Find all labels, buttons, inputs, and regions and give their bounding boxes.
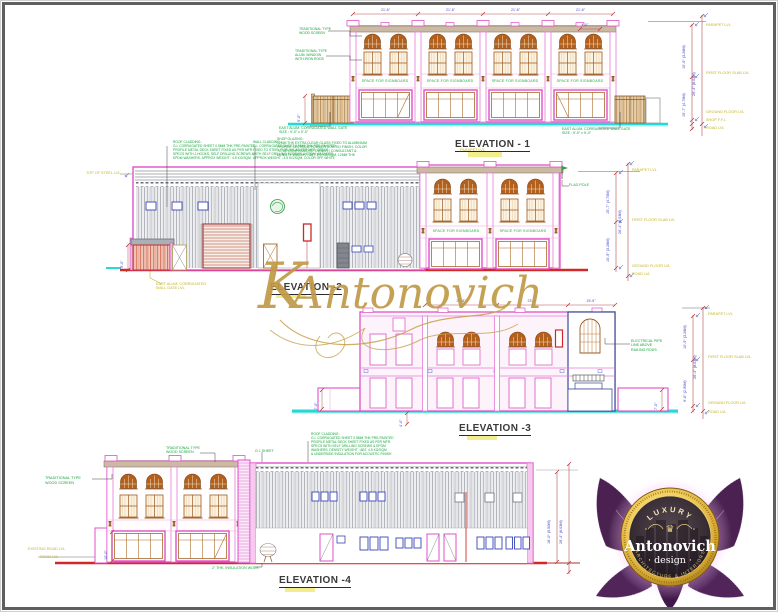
- green-note: EAST ALUM. CORRUGATED WALL GATE SIZE : 9…: [562, 127, 652, 136]
- dimension-text: 9'-0": [120, 260, 124, 268]
- elevation-4-drawing: [38, 441, 580, 574]
- dimension-text: 21'-6": [371, 8, 401, 12]
- green-note: 2" THK. INSULATION WORK: [212, 566, 304, 570]
- dimension-text: 10'-9" (3.28M): [682, 45, 686, 69]
- signboard-text: SPACE FOR SIGNBOARD: [552, 79, 608, 83]
- green-note: TRADITIONAL TYPE WOOD SCREEN: [299, 27, 331, 35]
- logo-design-text: · design ·: [648, 555, 692, 566]
- dimension-text: 10'-9" (3.28M): [606, 238, 610, 262]
- elevation-4-title: ELEVATION -4: [279, 575, 351, 588]
- signboard-text: SPACE FOR SIGNBOARD: [428, 229, 484, 233]
- signboard-text: SPACE FOR SIGNBOARD: [495, 229, 551, 233]
- level-label: EXISTING ROAD LVL: [28, 547, 65, 551]
- green-note: TRADITIONAL TYPE WOOD SCREEN: [166, 446, 200, 455]
- level-label: ROAD LVL: [708, 410, 727, 414]
- signboard-text: SPACE FOR SIGNBOARD: [487, 79, 543, 83]
- dimension-text: 9'-6" (2.90M): [683, 380, 687, 402]
- green-note: ELECTRICAL PIPE LINE ABOVE RAILING RODS: [631, 339, 662, 352]
- green-note: TRADITIONAL TYPE WOOD SCREEN: [45, 476, 81, 485]
- dimension-text: 26'-4" (8.03M): [692, 72, 696, 96]
- svg-text:♛: ♛: [666, 524, 675, 535]
- dimension-text: 10'-0": [104, 550, 108, 560]
- dimension-text: 15'-5": [576, 299, 606, 303]
- dimension-text: 10'-9" (3.28M): [683, 325, 687, 349]
- level-label: ROAD LVL: [632, 272, 651, 276]
- level-label: PARAPET LVL: [706, 23, 731, 27]
- level-label: PARAPET LVL: [632, 168, 657, 172]
- level-label: TOP OF STEEL LVL: [86, 171, 120, 175]
- green-note: FLAG POLE: [569, 183, 589, 187]
- dimension-text: 4'-0": [575, 23, 595, 27]
- level-label: EAST ALUM. CORRUGATED WALL GATE LVL: [156, 282, 216, 291]
- dimension-text: 26'-4" (8.03M): [559, 520, 563, 544]
- level-label: FIRST FLOOR SLAB LVL: [708, 355, 751, 359]
- dimension-text: 15'-7" (4.75M): [606, 190, 610, 214]
- signboard-text: SPACE FOR SIGNBOARD: [357, 79, 413, 83]
- dimension-text: 7'-0": [314, 402, 318, 410]
- level-label: GROUND FLOOR LVL: [632, 264, 671, 268]
- green-note: ROOF CLADDING : G.I. CORRUGATED SHEET 0.…: [311, 433, 401, 457]
- green-note: G.I. SHEET: [255, 449, 274, 453]
- level-label: SHOP F.F.L.: [706, 118, 727, 122]
- drawing-sheet: ELEVATION - 1 ELEVATION -2 ELEVATION -3 …: [0, 0, 778, 612]
- elevation-3-title: ELEVATION -3: [459, 423, 531, 436]
- dimension-text: 9'-0": [297, 114, 301, 122]
- logo-badge: LUXURY ♛ Antonovich · design · ARCHITECT…: [586, 450, 778, 612]
- signboard-text: SPACE FOR SIGNBOARD: [422, 79, 478, 83]
- level-label: FIRST FLOOR SLAB LVL: [706, 71, 749, 75]
- dimension-text: 7'-0": [654, 402, 658, 410]
- level-label: ROAD LVL: [706, 126, 725, 130]
- dimension-text: 18'-0" (5.50M): [547, 520, 551, 544]
- level-label: ROAD LVL: [40, 555, 59, 559]
- elevation-1-scale-highlight: [468, 152, 502, 157]
- dimension-text: 15'-7" (4.75M): [682, 93, 686, 117]
- level-label: GROUND FLOOR LVL: [708, 401, 747, 405]
- dimension-text: 21'-6": [566, 8, 596, 12]
- dimension-text: 4'-0": [399, 419, 403, 427]
- dimension-text: 26'-4" (8.03M): [618, 210, 622, 234]
- level-label: PARAPET LVL: [460, 148, 485, 152]
- green-note: ROOF CLADDING : G.I. CORRUGATED SHEET 0.…: [173, 141, 257, 161]
- green-note: TRADITIONAL TYPE ALUM. WINDOW WITH IRON …: [295, 49, 327, 61]
- green-note: EAST ALUM. CORRUGATED WALL GATE SIZE : 9…: [279, 126, 369, 135]
- elevation-1-drawing: [288, 12, 708, 136]
- level-label: FIRST FLOOR SLAB LVL: [632, 218, 675, 222]
- dimension-text: 21'-6": [501, 8, 531, 12]
- level-label: PARAPET LVL: [708, 312, 733, 316]
- dimension-text: 26'-4" (8.03M): [693, 355, 697, 379]
- dimension-text: 21'-6": [436, 8, 466, 12]
- level-label: GROUND FLOOR LVL: [706, 110, 745, 114]
- green-note: WALL CLADDING : G.I. CORRUGATED SHEET 0.…: [253, 141, 341, 161]
- watermark-flourish: [250, 290, 540, 360]
